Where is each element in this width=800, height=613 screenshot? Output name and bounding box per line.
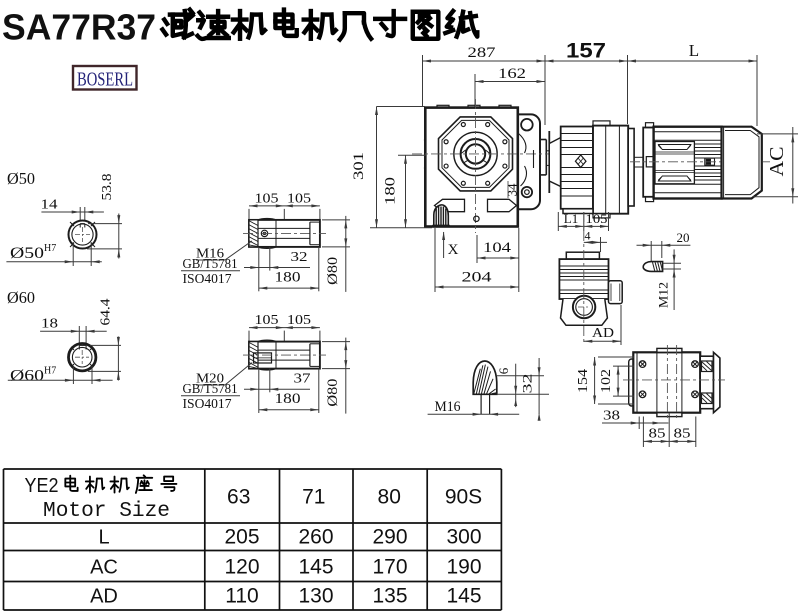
svg-text:180: 180 — [275, 391, 301, 407]
svg-text:YE2: YE2 — [25, 475, 59, 497]
svg-text:205: 205 — [224, 526, 259, 549]
svg-text:80: 80 — [378, 486, 401, 509]
svg-text:M12: M12 — [656, 282, 671, 308]
svg-text:Ø60: Ø60 — [10, 368, 44, 385]
svg-text:Ø80: Ø80 — [325, 257, 341, 285]
svg-text:Ø50: Ø50 — [10, 245, 44, 262]
svg-text:105: 105 — [287, 313, 311, 328]
svg-text:37: 37 — [294, 372, 311, 387]
svg-text:157: 157 — [566, 40, 606, 63]
svg-text:ISO4017: ISO4017 — [183, 397, 232, 412]
svg-text:18: 18 — [41, 317, 58, 332]
svg-text:AC: AC — [766, 147, 788, 177]
svg-text:154: 154 — [576, 369, 591, 393]
svg-text:AC: AC — [90, 557, 118, 579]
svg-text:162: 162 — [498, 66, 526, 82]
svg-text:290: 290 — [372, 526, 407, 549]
svg-text:204: 204 — [462, 270, 493, 286]
svg-text:145: 145 — [298, 556, 333, 579]
svg-text:H7: H7 — [44, 243, 56, 254]
svg-text:AD: AD — [90, 586, 118, 608]
svg-text:110: 110 — [225, 585, 258, 608]
svg-text:L: L — [689, 41, 699, 60]
svg-text:85: 85 — [649, 427, 666, 442]
svg-text:32: 32 — [291, 250, 308, 265]
svg-text:M16: M16 — [435, 399, 461, 415]
svg-text:34: 34 — [505, 183, 520, 197]
svg-text:64.4: 64.4 — [99, 299, 114, 326]
svg-text:135: 135 — [372, 585, 407, 608]
svg-text:180: 180 — [275, 269, 301, 285]
svg-text:63: 63 — [227, 486, 250, 509]
svg-text:90S: 90S — [445, 486, 482, 509]
svg-text:L1: L1 — [564, 211, 578, 226]
svg-text:32: 32 — [520, 374, 535, 394]
svg-text:53.8: 53.8 — [100, 174, 115, 201]
svg-text:300: 300 — [446, 526, 481, 549]
svg-text:14: 14 — [41, 198, 58, 213]
svg-text:38: 38 — [603, 409, 620, 424]
svg-text:Motor Size: Motor Size — [43, 500, 170, 523]
svg-text:301: 301 — [351, 152, 367, 180]
svg-text:AD: AD — [592, 326, 614, 341]
svg-text:120: 120 — [224, 556, 259, 579]
svg-text:105: 105 — [287, 191, 311, 206]
svg-text:145: 145 — [446, 585, 481, 608]
svg-text:71: 71 — [302, 486, 325, 509]
svg-text:287: 287 — [468, 45, 497, 61]
svg-text:BOSERL: BOSERL — [77, 69, 133, 91]
svg-text:4: 4 — [585, 229, 591, 243]
svg-text:190: 190 — [446, 556, 481, 579]
svg-text:Ø60: Ø60 — [7, 288, 35, 307]
svg-text:104: 104 — [483, 240, 512, 256]
svg-text:SA77R37: SA77R37 — [2, 7, 156, 48]
svg-text:20: 20 — [677, 230, 690, 245]
svg-text:170: 170 — [372, 556, 407, 579]
svg-text:130: 130 — [298, 585, 333, 608]
svg-text:260: 260 — [298, 526, 333, 549]
svg-text:X: X — [448, 242, 459, 258]
svg-text:105: 105 — [255, 313, 279, 328]
svg-text:105: 105 — [586, 211, 608, 226]
svg-text:GB/T5781: GB/T5781 — [183, 257, 238, 272]
svg-text:85: 85 — [674, 427, 691, 442]
svg-text:105: 105 — [255, 191, 279, 206]
svg-text:6: 6 — [496, 367, 511, 374]
svg-text:ISO4017: ISO4017 — [183, 272, 232, 287]
svg-text:102: 102 — [599, 369, 614, 393]
svg-text:Ø80: Ø80 — [325, 379, 341, 407]
svg-text:180: 180 — [383, 177, 399, 205]
svg-text:H7: H7 — [44, 366, 56, 377]
svg-text:Ø50: Ø50 — [7, 169, 35, 188]
svg-text:L: L — [98, 527, 109, 549]
svg-text:GB/T5781: GB/T5781 — [183, 382, 238, 397]
